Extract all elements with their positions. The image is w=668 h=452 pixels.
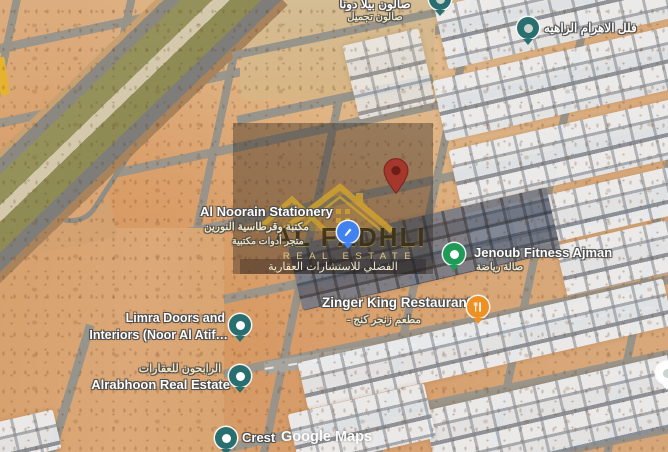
poi-label-stationery[interactable]: Al Noorain Stationery (200, 204, 333, 219)
poi-label-alrabhoon-ar[interactable]: الرابحون للعقارات (130, 362, 230, 375)
poi-label-salon[interactable]: صالون بيلا دونا (330, 0, 420, 11)
poi-label-crest[interactable]: Crest (242, 430, 275, 445)
poi-label-doors-line1[interactable]: Limra Doors and (120, 311, 225, 325)
poi-sublabel2-stationery: متجر أدوات مكتبية (232, 236, 304, 247)
poi-label-alrabhoon[interactable]: Alrabhoon Real Estate (85, 377, 230, 392)
stationery-pin-icon[interactable] (337, 221, 359, 243)
poi-sublabel-salon: صالون تجميل (338, 12, 412, 23)
red-map-pin-icon[interactable] (383, 157, 409, 195)
poi-sublabel-fitness: صالة رياضة (476, 262, 523, 273)
google-maps-attribution[interactable]: Google Maps (281, 429, 372, 445)
doors-pin-icon[interactable] (229, 314, 251, 336)
poi-sublabel-restaurant: مطعم زنجر كنج - (334, 314, 434, 326)
villas-pin-icon[interactable] (517, 17, 539, 39)
poi-sublabel-stationery: مكتبة وقرطاسية النورين (204, 221, 309, 233)
fitness-pin-icon[interactable] (443, 243, 465, 265)
crest-pin-icon[interactable] (215, 427, 237, 449)
poi-label-doors-line2[interactable]: Interiors (Noor Al Atif… (80, 328, 228, 342)
poi-label-fitness[interactable]: Jenoub Fitness Ajman (474, 245, 612, 260)
poi-label-villas[interactable]: فلل الاهرام الزاهيه (544, 21, 637, 35)
map-canvas[interactable]: AL FADHLI REAL ESTATE الفضلي للاستشارات … (0, 0, 668, 452)
poi-label-restaurant[interactable]: Zinger King Restaurant (322, 295, 471, 310)
restaurant-pin-icon[interactable] (467, 296, 489, 318)
alrabhoon-pin-icon[interactable] (229, 365, 251, 387)
watermark-tagline: الفضلي للاستشارات العقارية (240, 259, 426, 274)
